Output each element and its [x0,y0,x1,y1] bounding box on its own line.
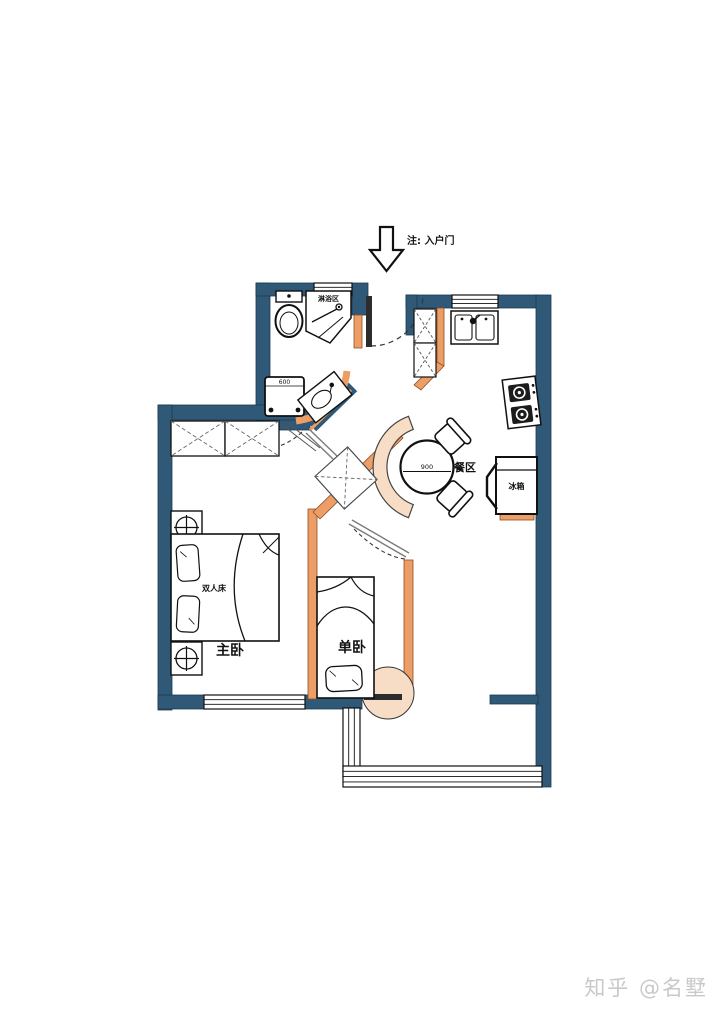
single-bedroom-label: 单卧 [338,639,366,656]
wall-master-bottom-left [158,695,204,709]
shower-area-label: 淋浴区 [318,294,339,303]
pillow [176,544,200,581]
toilet [276,291,303,337]
single-room-door-leaf [349,520,409,557]
entry-note-label: 注: 入户门 [407,234,454,247]
double-bed-label: 双人床 [202,583,227,593]
single-room-door-arc [354,529,405,559]
table-diameter-label: 900 [421,463,433,471]
window-balcony-bottom [343,766,542,787]
master-bedroom-label: 主卧 [216,642,244,659]
watermark: 知乎 @名墅 [584,972,708,1002]
washer-width-label: 600 [279,379,291,386]
stove [502,376,541,429]
floor-plan-page: 注: 入户门 淋浴区 餐区 冰箱 双人床 主卧 单卧 900 600 知乎 @名… [0,0,720,1023]
wardrobe [171,421,279,456]
bathroom-door-leaf [306,430,337,459]
dining-area-label: 餐区 [453,460,476,474]
wall-right [536,295,551,787]
wall-kitchen-top-right [498,295,538,308]
single-bed [317,577,374,698]
entry-door-leaf [366,296,372,347]
nightstand-lamp [171,642,202,675]
floor-plan-drawing: 注: 入户门 淋浴区 餐区 冰箱 双人床 主卧 单卧 900 600 [0,0,720,1023]
pillow [176,595,200,632]
pillow [325,665,362,692]
kitchen-cabinet-strip [437,308,444,366]
wall-right-stub [490,695,538,704]
wall-master-left [158,405,172,710]
kitchen-tall-cabinets [414,309,436,377]
wall-entry-post [352,283,368,315]
single-room-left-wall [308,509,317,699]
entry-side-strip [354,315,362,348]
kitchen-sink [451,311,498,344]
window-master-bottom [204,695,305,709]
window-kitchen-top [452,295,498,308]
entry-arrow-icon [370,227,403,271]
fridge-label: 冰箱 [509,481,525,491]
corner-closet [315,447,377,509]
